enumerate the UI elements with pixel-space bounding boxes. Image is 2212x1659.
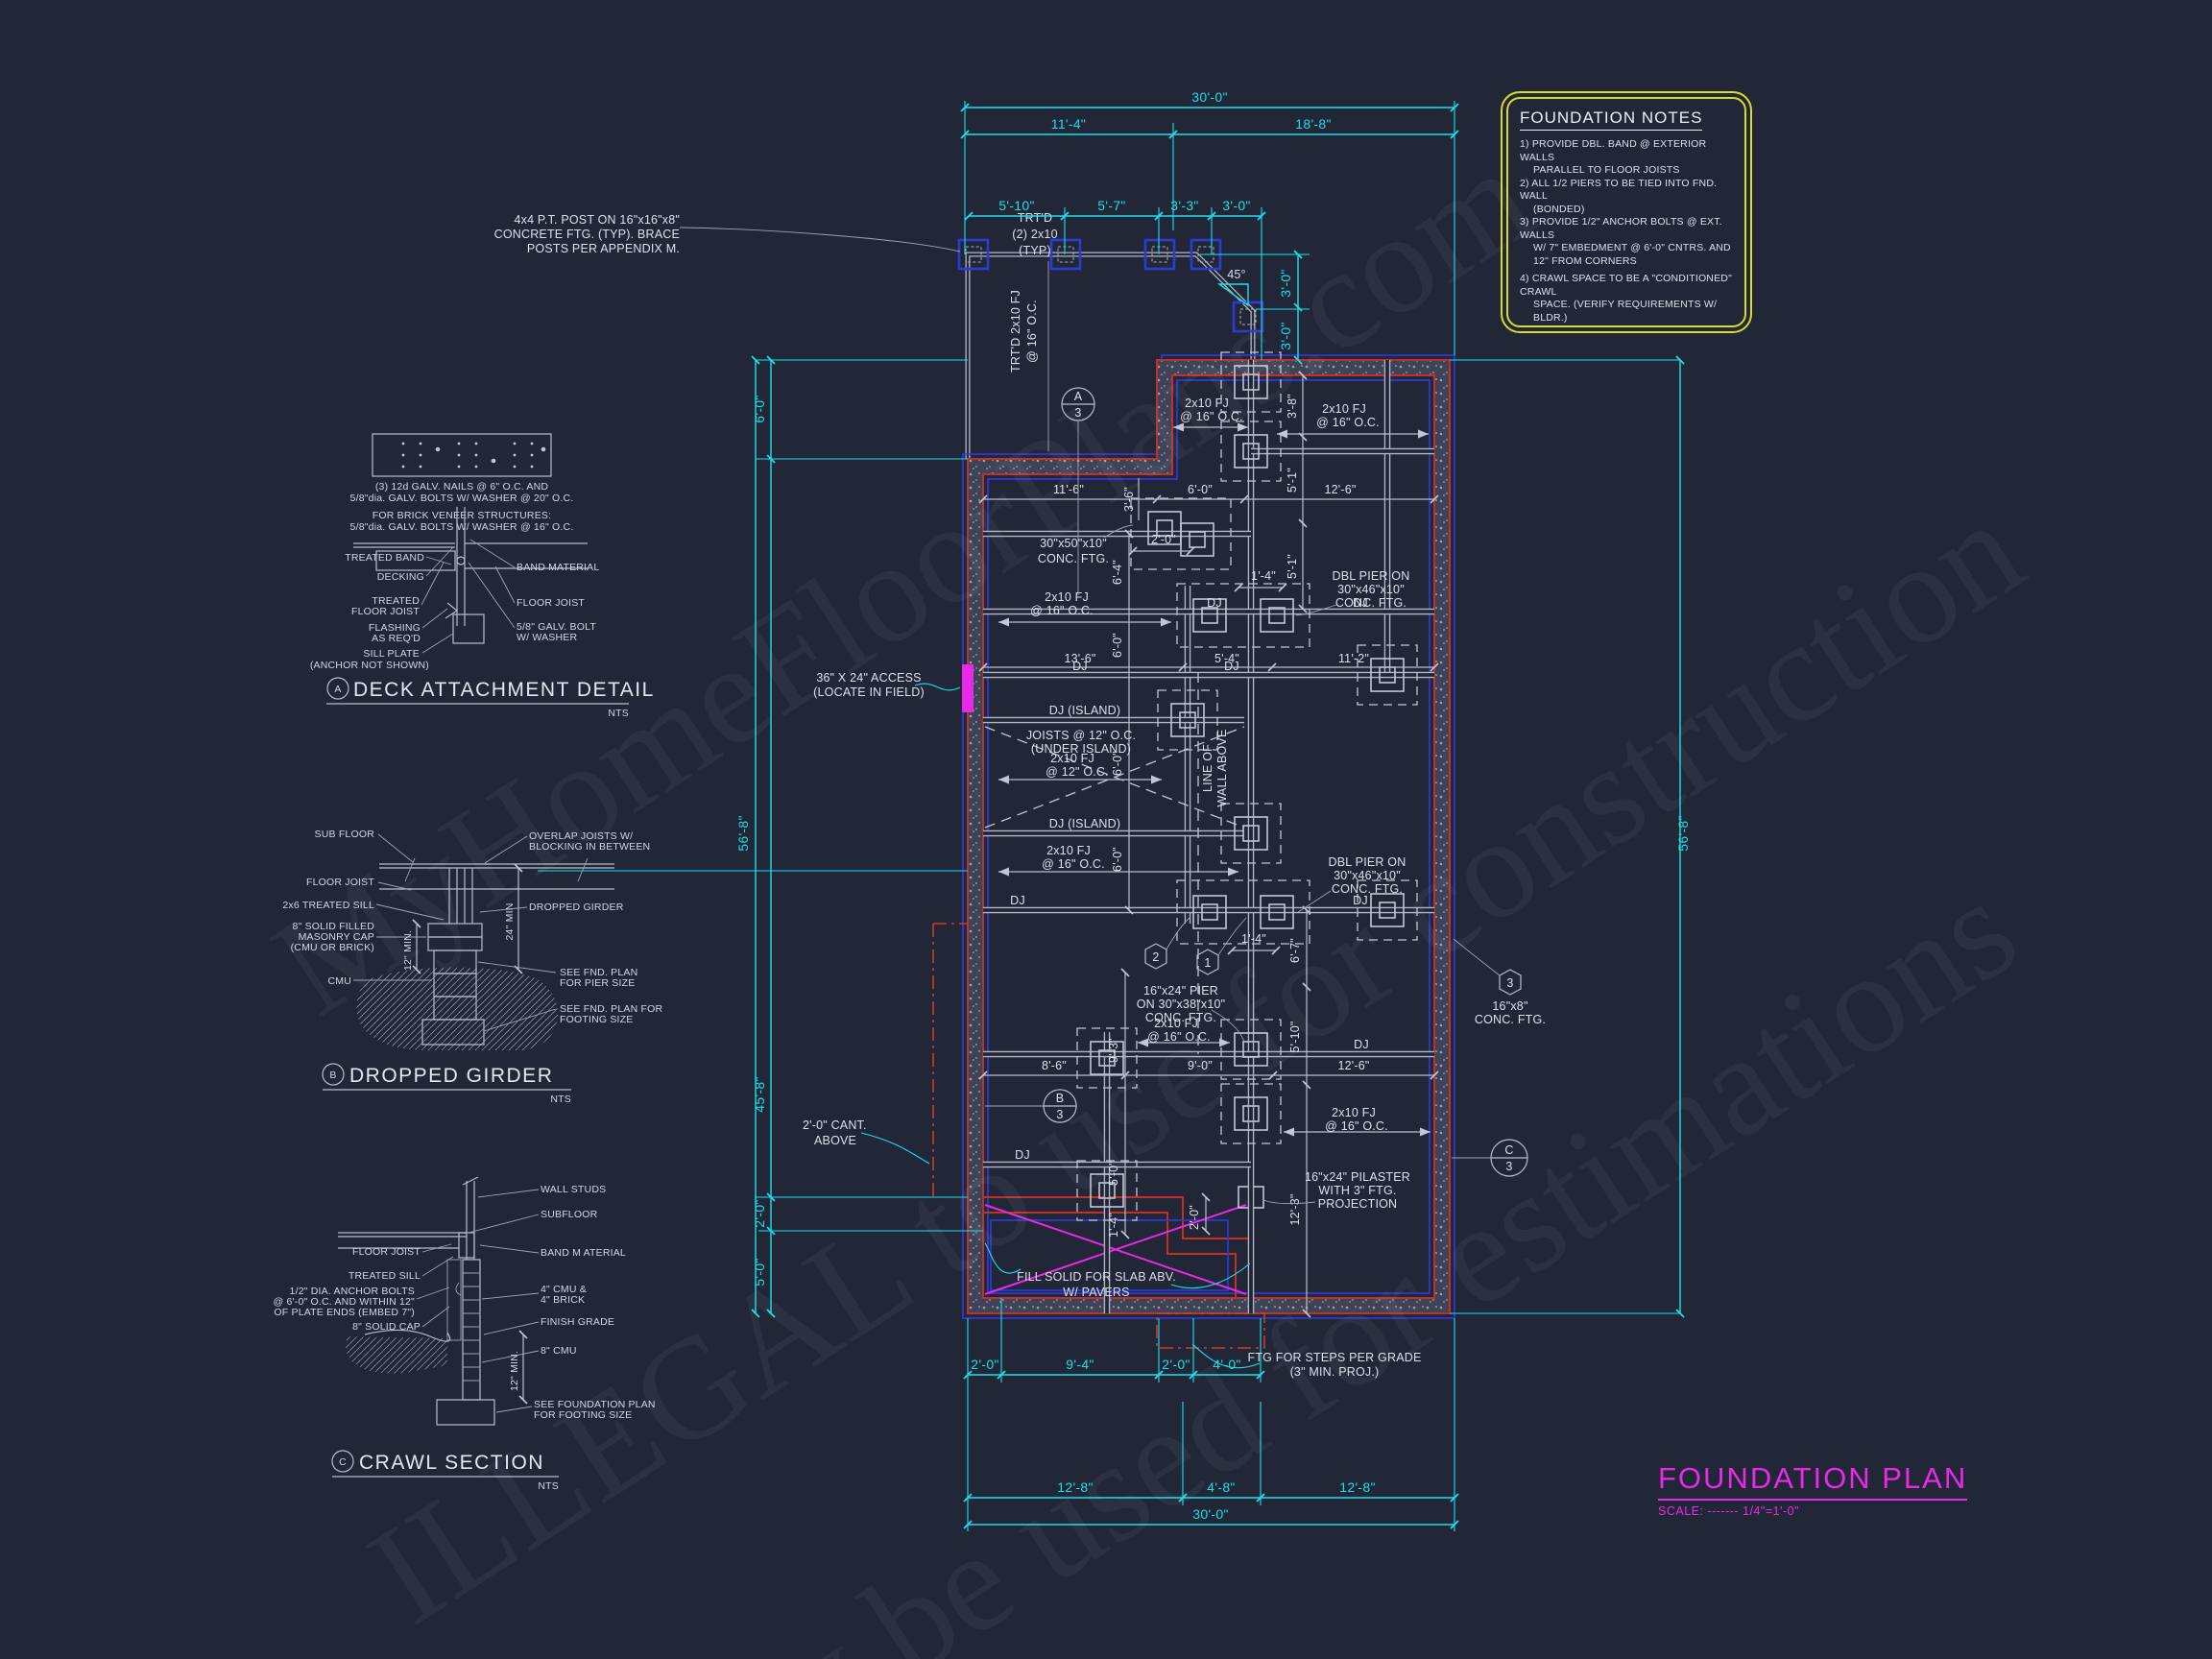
detail-label: 4" BRICK [541, 1294, 585, 1306]
dj-label: DJ [1224, 660, 1239, 673]
dim-label: 2'-0" [1188, 1205, 1201, 1230]
dim-label: 56'-8" [735, 815, 751, 851]
joist-label: @ 16" O.C. [1042, 857, 1105, 871]
pier-marker-1: 1 [1197, 918, 1246, 974]
dim-label: 12'-6" [1337, 1059, 1369, 1072]
detail-caption: 5/8"dia. GALV. BOLTS W/ WASHER @ 20" O.C… [350, 493, 574, 504]
foundation-notes-title: FOUNDATION NOTES [1520, 108, 1702, 131]
island-joist-note: (UNDER ISLAND) [1031, 742, 1131, 756]
dim-label: 45'-8" [752, 1076, 767, 1112]
marker-number: 1 [1204, 956, 1211, 970]
dim-label: 11'-6" [1053, 483, 1084, 496]
trtd-label: TRT'D [1018, 211, 1053, 225]
joist-label: 2x10 FJ [1185, 397, 1229, 410]
detail-label: FOR PIER SIZE [560, 977, 635, 989]
joist-label: @ 16" O.C. [1325, 1119, 1388, 1133]
joist-label: 2x10 FJ [1332, 1106, 1376, 1119]
dim-label: 30'-0" [1191, 89, 1227, 105]
marker-number: 3 [1074, 406, 1081, 420]
deck-outline [680, 228, 1262, 459]
footing-note: 16"x8" [1492, 999, 1527, 1013]
note-2: 2) ALL 1/2 PIERS TO BE TIED INTO FND. WA… [1520, 178, 1733, 204]
footing-note: CONC. FTG. [1038, 552, 1109, 565]
footing-note: 30"x50"x10" [1040, 537, 1107, 550]
joist-label: 2x10 FJ [1322, 402, 1366, 416]
post-note: POSTS PER APPENDIX M. [527, 242, 680, 255]
foundation-plan-drawing: 4x4 P.T. POST ON 16"x16"x8" CONCRETE FTG… [0, 0, 2212, 1659]
detail-caption: 5/8"dia. GALV. BOLTS W/ WASHER @ 16" O.C… [350, 521, 574, 533]
drawing-title: FOUNDATION PLAN [1658, 1461, 1967, 1501]
note-1-cont: PARALLEL TO FLOOR JOISTS [1520, 164, 1733, 178]
dim-label: 1'-4" [1241, 932, 1266, 946]
dim-label: 6'-0" [1188, 483, 1213, 496]
dim-label: 12'-8" [1339, 1479, 1375, 1495]
title-block: FOUNDATION PLAN SCALE: ------- 1/4"=1'-0… [1658, 1461, 1967, 1518]
island-joist-note: JOISTS @ 12" O.C. [1026, 729, 1136, 742]
marker-letter: A [1074, 390, 1083, 403]
joist-label: 2x10 FJ [1045, 590, 1089, 604]
dim-label: 6'-0" [1111, 633, 1124, 658]
marker-number: 2 [1152, 950, 1159, 964]
fill-solid-note: W/ PAVERS [1063, 1286, 1129, 1299]
dbl-pier-note: CONC. FTG. [1335, 596, 1407, 610]
steps-note: FTG FOR STEPS PER GRADE [1247, 1351, 1421, 1364]
dim-label: 12'-6" [1324, 483, 1356, 496]
deck-labels: 4x4 P.T. POST ON 16"x16"x8" CONCRETE FTG… [494, 211, 1246, 373]
detail-caption: FOR BRICK VENEER STRUCTURES: [373, 510, 551, 521]
detail-label: TREATED SILL [349, 1270, 421, 1282]
trtd-fj-label: TRT'D 2x10 FJ [1009, 290, 1022, 373]
detail-dropped-girder: SUB FLOOR FLOOR JOIST 2x6 TREATED SILL 8… [282, 829, 662, 1105]
marker-number: 3 [1056, 1108, 1063, 1121]
dbl-pier-note: CONC. FTG. [1332, 882, 1403, 896]
dim-label: 9'-4" [1066, 1357, 1094, 1372]
dim-label: 2'-0" [1162, 1357, 1190, 1372]
note-3: 3) PROVIDE 1/2" ANCHOR BOLTS @ EXT. WALL… [1520, 216, 1733, 242]
joist-label: @ 16" O.C. [1316, 416, 1380, 429]
detail-label: BLOCKING IN BETWEEN [529, 841, 650, 853]
access-opening [962, 664, 974, 712]
dim-label: 56'-8" [1675, 815, 1691, 851]
pilaster-note: 16"x24" PILASTER [1305, 1170, 1410, 1184]
detail-label: BAND M ATERIAL [541, 1247, 626, 1259]
access-note: (LOCATE IN FIELD) [813, 685, 925, 699]
dim-label: 6'-4" [1111, 560, 1124, 585]
detail-label: CMU [327, 975, 351, 987]
note-4-cont: SPACE. (VERIFY REQUIREMENTS W/ BLDR.) [1520, 299, 1733, 325]
marker-number: 3 [1506, 976, 1513, 990]
dim-label: 2'-0" [752, 1199, 767, 1227]
dim-label: 5'-0" [1107, 1161, 1120, 1186]
dim-label: 3'-0" [1222, 198, 1250, 213]
dj-island-label: DJ (ISLAND) [1049, 704, 1120, 717]
dj-label: DJ [1207, 596, 1222, 610]
access-note: 36" X 24" ACCESS [816, 671, 921, 685]
detail-crawl-section: WALL STUDS SUBFLOOR BAND M ATERIAL FLOOR… [274, 1177, 656, 1492]
trtd-fj-label: @ 16" O.C. [1025, 300, 1039, 363]
dbl-pier-note: DBL PIER ON [1333, 569, 1410, 583]
blueprint-canvas: MyHomeFloorPlans.com ILLEGAL to use for … [0, 0, 2212, 1659]
note-3-cont: W/ 7" EMBEDMENT @ 6'-0" CNTRS. AND [1520, 242, 1733, 255]
joist-label: @ 16" O.C. [1030, 604, 1094, 617]
detail-label: FLOOR JOIST [352, 1246, 421, 1258]
dim-label: 3'-6" [1122, 487, 1136, 512]
detail-label: 2x6 TREATED SILL [282, 900, 374, 911]
dj-label: DJ [1354, 1038, 1369, 1051]
pier-marker-2: 2 [1145, 917, 1190, 969]
note-1: 1) PROVIDE DBL. BAND @ EXTERIOR WALLS [1520, 138, 1733, 164]
detail-nts: NTS [608, 708, 629, 719]
detail-label: 8" CMU [541, 1345, 577, 1357]
dim-label: 1'-4" [1107, 1213, 1120, 1238]
detail-deck-attachment: (3) 12d GALV. NAILS @ 6" O.C. AND 5/8"di… [310, 434, 655, 719]
detail-dim: 24" MIN [504, 903, 516, 941]
detail-title: DROPPED GIRDER [349, 1065, 553, 1087]
trtd-label: (2) 2x10 [1012, 228, 1057, 241]
detail-nts: NTS [550, 1094, 571, 1105]
detail-label: SILL PLATE [363, 648, 420, 660]
detail-label: TREATED BAND [345, 552, 424, 564]
dj-label: DJ [1072, 660, 1088, 673]
detail-bubble: B [329, 1070, 336, 1081]
pier-note: CONC. FTG. [1145, 1011, 1216, 1024]
dim-label: 5'-0" [752, 1258, 767, 1286]
dim-label: 4'-8" [1207, 1479, 1235, 1495]
detail-label: SUB FLOOR [315, 829, 375, 840]
dim-label: 1'-4" [1251, 569, 1276, 583]
dbl-pier-note: DBL PIER ON [1329, 855, 1407, 869]
detail-label: (CMU OR BRICK) [291, 942, 374, 953]
dim-label: 2'-0" [1151, 533, 1176, 546]
dim-label: 18'-8" [1295, 116, 1331, 132]
joist-label: 2x10 FJ [1046, 844, 1091, 857]
detail-bubble: A [334, 684, 341, 695]
dim-label: 6'-0" [1111, 847, 1124, 872]
joist-label: @ 16" O.C. [1147, 1030, 1211, 1044]
detail-label: DECKING [377, 571, 424, 583]
dbl-pier-note: 30"x46"x10" [1337, 583, 1405, 596]
detail-dim: 12" MIN. [402, 930, 414, 971]
detail-title: DECK ATTACHMENT DETAIL [353, 679, 655, 701]
marker-letter: C [1504, 1143, 1513, 1157]
dim-label: 9'-0" [1188, 1059, 1213, 1072]
dj-label: DJ [1353, 894, 1368, 907]
dim-label: 5'-10" [1288, 1021, 1302, 1052]
marker-letter: B [1056, 1092, 1065, 1105]
detail-nts: NTS [538, 1480, 559, 1492]
cant-note: 2'-0" CANT. [803, 1118, 867, 1132]
detail-label: 8" SOLID CAP [352, 1321, 421, 1333]
note-4: 4) CRAWL SPACE TO BE A "CONDITIONED" CRA… [1520, 273, 1733, 299]
dim-label: 9'-3" [1107, 1038, 1120, 1063]
foundation-notes-inner: FOUNDATION NOTES 1) PROVIDE DBL. BAND @ … [1506, 97, 1746, 327]
dim-label: 6'-0" [752, 395, 767, 422]
detail-label: AS REQ'D [372, 633, 421, 644]
detail-label: FLOOR JOIST [351, 606, 420, 617]
dim-label: 4'-0" [1213, 1357, 1240, 1372]
line-of-wall-label: WALL ABOVE [1215, 730, 1229, 807]
section-marker-b: B 3 [985, 1090, 1076, 1122]
dj-label: DJ [1010, 894, 1025, 907]
detail-title: CRAWL SECTION [359, 1452, 544, 1474]
trtd-label: (TYP) [1019, 244, 1051, 257]
dim-label: 3'-0" [1278, 322, 1293, 349]
dim-label: 2'-0" [971, 1357, 998, 1372]
angle-45-label: 45° [1227, 268, 1246, 281]
dim-label: 3'-0" [1278, 269, 1293, 297]
cant-note: ABOVE [814, 1134, 856, 1147]
dj-island-label: DJ (ISLAND) [1049, 817, 1120, 830]
detail-label: BAND MATERIAL [517, 562, 599, 573]
dim-label: 12'-3" [1288, 1193, 1302, 1225]
steps-note: (3" MIN. PROJ.) [1290, 1365, 1380, 1379]
detail-label: W/ WASHER [517, 632, 577, 643]
post-note: CONCRETE FTG. (TYP). BRACE [494, 228, 680, 241]
dim-label: 11'-2" [1338, 652, 1369, 665]
dbl-pier-note: 30"x46"x10" [1334, 869, 1401, 882]
line-of-wall-label: LINE OF [1201, 744, 1214, 792]
pilaster-note: PROJECTION [1318, 1197, 1398, 1211]
note-3-cont: 12" FROM CORNERS [1520, 255, 1733, 269]
section-marker-c: C 3 [1452, 1140, 1527, 1176]
joist-label: @ 16" O.C. [1180, 410, 1243, 423]
fill-solid-note: FILL SOLID FOR SLAB ABV. [1017, 1270, 1176, 1284]
piers-and-footings [1077, 352, 1417, 1220]
detail-label: OF PLATE ENDS (EMBED 7") [274, 1307, 415, 1318]
marker-number: 3 [1505, 1160, 1512, 1173]
dim-label: 3'-3" [1170, 198, 1198, 213]
detail-label: FOOTING SIZE [560, 1014, 634, 1025]
foundation-notes-box: FOUNDATION NOTES 1) PROVIDE DBL. BAND @ … [1501, 91, 1752, 333]
dim-label: 5'-7" [1097, 198, 1125, 213]
detail-label: FOR FOOTING SIZE [534, 1409, 632, 1421]
dim-label: 12'-8" [1057, 1479, 1093, 1495]
detail-bubble: C [339, 1456, 347, 1468]
dim-label: 8'-6" [1042, 1059, 1067, 1072]
dj-label: DJ [1015, 1148, 1030, 1162]
detail-caption: (3) 12d GALV. NAILS @ 6" O.C. AND [375, 481, 549, 493]
detail-label: FINISH GRADE [541, 1316, 614, 1328]
dim-label: 5'-1" [1286, 554, 1299, 579]
detail-label: SUBFLOOR [541, 1209, 598, 1220]
detail-label: (ANCHOR NOT SHOWN) [310, 660, 429, 671]
pier-note: ON 30"x38"x10" [1137, 998, 1226, 1011]
dim-label: 3'-8" [1286, 394, 1299, 419]
footing-marker-3: 3 16"x8" CONC. FTG. [1454, 939, 1546, 1026]
pier-note: 16"x24" PIER [1143, 984, 1218, 998]
detail-label: FLOOR JOIST [517, 597, 585, 609]
dim-label: 5'-1" [1286, 468, 1299, 493]
detail-label: FLOOR JOIST [306, 877, 374, 888]
footing-note: CONC. FTG. [1475, 1013, 1546, 1026]
detail-dim: 12" MIN. [509, 1351, 520, 1391]
post-note: 4x4 P.T. POST ON 16"x16"x8" [515, 213, 681, 227]
dim-label: 30'-0" [1192, 1506, 1228, 1522]
detail-label: WALL STUDS [541, 1184, 606, 1195]
dim-label: 5'-10" [998, 198, 1034, 213]
dim-label: 11'-4" [1051, 116, 1086, 132]
note-2-cont: (BONDED) [1520, 204, 1733, 217]
dim-label: 6'-7" [1288, 938, 1302, 963]
pilaster-note: WITH 3" FTG. [1318, 1184, 1396, 1197]
detail-label: DROPPED GIRDER [529, 902, 624, 913]
drawing-scale: SCALE: ------- 1/4"=1'-0" [1658, 1504, 1967, 1518]
joist-label: @ 12" O.C. [1046, 765, 1109, 779]
